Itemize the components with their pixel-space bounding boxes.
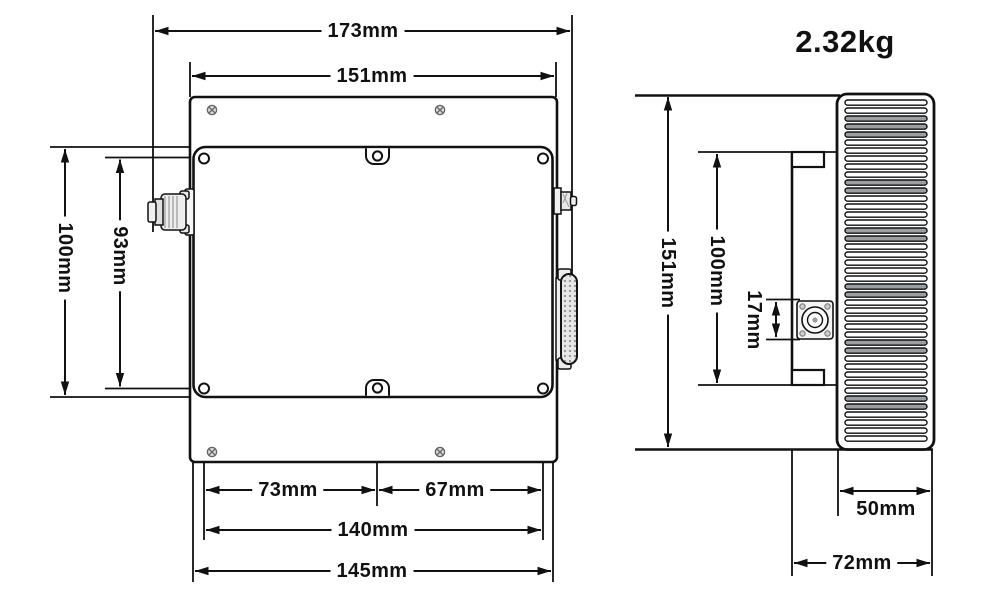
- rf-connector-sma-icon: [554, 188, 577, 214]
- dim-label-side-body-height: 100mm: [705, 230, 729, 313]
- dim-label-heatsink-depth: 50mm: [850, 497, 921, 521]
- dim-label-hole-pitch-h: 140mm: [332, 518, 415, 542]
- dim-label-overall-depth: 72mm: [826, 551, 897, 575]
- dim-label-hole-offset-left: 73mm: [252, 478, 323, 502]
- dim-label-cover-width: 145mm: [331, 559, 414, 583]
- dim-label-cover-height: 100mm: [53, 217, 77, 300]
- weight-label: 2.32kg: [791, 25, 899, 59]
- dimension-drawing: 173mm 151mm 100mm 93mm 73mm 67mm 140mm 1…: [0, 0, 1000, 605]
- dim-label-connector-height: 17mm: [742, 288, 766, 351]
- dim-label-flange-width: 151mm: [331, 64, 414, 88]
- heatsink-fins: [845, 100, 927, 441]
- dim-label-side-flange-height: 151mm: [656, 232, 680, 315]
- dsub-connector-icon: [556, 269, 577, 369]
- dim-label-hole-offset-right: 67mm: [419, 478, 490, 502]
- rf-connector-front-icon: [797, 301, 833, 339]
- cover-outline: [194, 147, 553, 397]
- dim-label-overall-width: 173mm: [322, 19, 405, 43]
- dim-label-hole-pitch-v: 93mm: [108, 220, 132, 291]
- rf-connector-n-icon: [148, 189, 194, 235]
